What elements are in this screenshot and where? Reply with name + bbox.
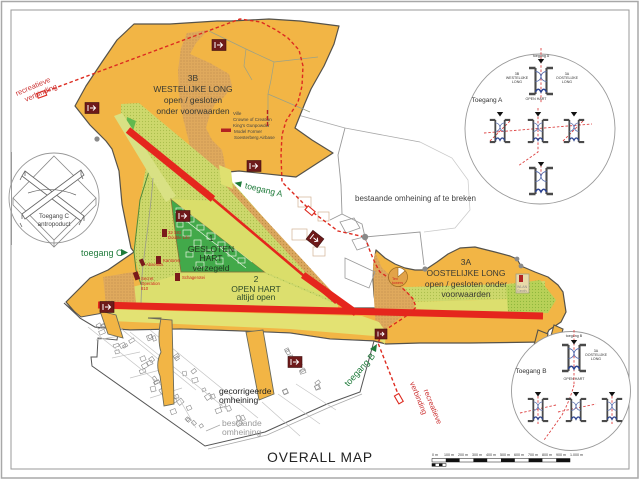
svg-text:0 m: 0 m [432,453,438,457]
svg-text:200 m: 200 m [458,453,468,457]
svg-text:Toegang B: Toegang B [515,368,546,375]
svg-text:open / gesloten: open / gesloten [164,95,222,105]
svg-text:onder voorwaarden: onder voorwaarden [156,106,230,116]
svg-text:Ville: Ville [233,111,242,116]
svg-text:Geoth.: Geoth. [517,289,528,293]
svg-text:Absentia: Absentia [146,262,163,267]
svg-text:900 m: 900 m [556,453,566,457]
svg-text:100 m: 100 m [444,453,454,457]
svg-text:WESTELIJKE LONG: WESTELIJKE LONG [153,84,232,94]
svg-text:omheining: omheining [222,427,261,437]
svg-text:Schagerotei: Schagerotei [182,275,205,280]
svg-text:810: 810 [141,286,149,291]
svg-text:300 m: 300 m [472,453,482,457]
svg-text:3A: 3A [461,257,472,267]
svg-text:open / gesloten onder: open / gesloten onder [425,279,507,289]
svg-text:OPEN HART: OPEN HART [526,97,548,101]
svg-text:verzegeld: verzegeld [193,263,230,273]
svg-text:Toegang C: Toegang C [39,213,69,220]
svg-text:1.000 m: 1.000 m [570,453,583,457]
svg-text:Toegang A: Toegang A [472,97,503,104]
svg-text:Crowne of Creation: Crowne of Creation [233,117,272,122]
svg-text:Soesterberg Airbase: Soesterberg Airbase [234,135,275,140]
svg-text:600 m: 600 m [514,453,524,457]
svg-text:2: 2 [254,274,259,284]
svg-text:LONG: LONG [591,357,601,361]
svg-text:Kantoren: Kantoren [163,258,181,263]
svg-text:3B: 3B [188,73,199,83]
svg-text:toegang C: toegang C [81,248,123,258]
svg-text:1: 1 [209,233,214,243]
svg-text:omheining: omheining [219,395,258,405]
svg-text:OOSTELIJKE LONG: OOSTELIJKE LONG [427,268,506,278]
svg-text:HART: HART [200,253,223,263]
svg-text:500 m: 500 m [500,453,510,457]
svg-text:altijd open: altijd open [237,292,276,302]
svg-text:OVERALL MAP: OVERALL MAP [267,450,373,465]
svg-text:towers: towers [392,281,403,285]
svg-text:antropoduct: antropoduct [38,221,71,228]
svg-text:Model Former: Model Former [234,129,263,134]
svg-text:Double Life: Double Life [168,235,190,240]
svg-text:LONG: LONG [562,80,572,84]
svg-text:400 m: 400 m [486,453,496,457]
svg-text:voorwaarden: voorwaarden [441,289,490,299]
svg-text:800 m: 800 m [542,453,552,457]
svg-text:LONG: LONG [512,80,522,84]
svg-text:700 m: 700 m [528,453,538,457]
svg-text:King's Gunpowder: King's Gunpowder [233,123,270,128]
svg-text:bestaande omheining af te brek: bestaande omheining af te breken [355,194,476,203]
